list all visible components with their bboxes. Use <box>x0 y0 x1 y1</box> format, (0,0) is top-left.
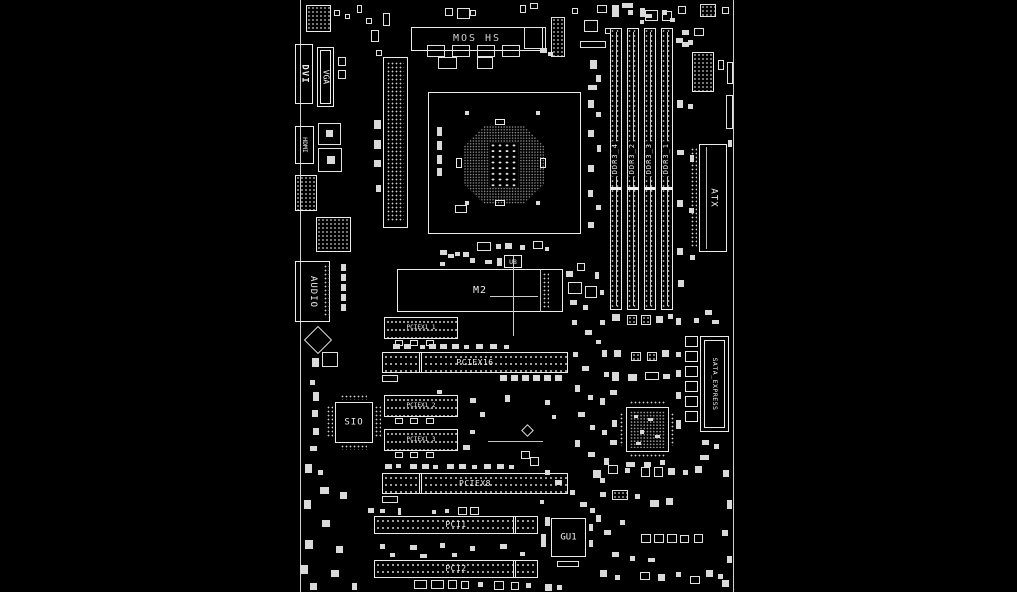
component <box>521 451 530 459</box>
component <box>727 500 732 509</box>
component <box>345 14 350 19</box>
component <box>615 575 620 580</box>
component <box>604 372 609 377</box>
component <box>600 320 605 325</box>
component <box>496 244 501 249</box>
component <box>410 464 417 469</box>
component <box>485 260 492 264</box>
component <box>620 413 624 446</box>
dimm-slot-3[interactable]: DDR3_3 <box>644 28 656 310</box>
component <box>572 320 577 325</box>
component <box>437 390 442 394</box>
component <box>634 415 638 418</box>
component <box>590 508 595 513</box>
component <box>322 352 338 367</box>
component <box>680 535 689 543</box>
component <box>582 366 589 371</box>
component <box>452 553 457 557</box>
component <box>640 430 644 434</box>
component <box>610 440 617 445</box>
component <box>588 395 593 400</box>
component <box>543 273 549 309</box>
lan-port[interactable] <box>316 217 351 252</box>
gu1-chip[interactable]: GU1 <box>551 518 586 557</box>
component <box>655 435 660 438</box>
component <box>410 545 417 550</box>
sio-chip-label: SIO <box>336 418 372 427</box>
component <box>526 583 531 588</box>
component <box>385 464 392 469</box>
component <box>596 112 601 117</box>
component <box>437 127 442 136</box>
component <box>712 320 719 324</box>
pci-slot-2[interactable]: PCI2 <box>374 560 538 578</box>
component <box>555 375 562 381</box>
component <box>706 570 713 577</box>
component <box>588 165 594 172</box>
component <box>656 316 663 323</box>
component <box>502 45 520 57</box>
pci-slot-1[interactable]: PCI1 <box>374 516 538 534</box>
component <box>627 315 637 325</box>
component <box>376 50 382 56</box>
sata-ports[interactable] <box>685 336 698 422</box>
component <box>312 358 319 367</box>
component <box>584 20 598 32</box>
pciex16-slot[interactable]: PCIEX16 <box>382 352 568 373</box>
hdmi-port[interactable]: HDMI <box>295 126 314 164</box>
pciex8-slot[interactable]: PCIEX8 <box>382 473 568 494</box>
dimm-slot-label: DDR3_4 <box>612 141 619 176</box>
component <box>600 290 604 295</box>
component <box>612 12 619 17</box>
component <box>605 28 611 34</box>
component <box>694 534 703 543</box>
component <box>410 340 418 346</box>
component <box>387 62 404 222</box>
component <box>470 430 475 434</box>
socket-notch-right <box>540 158 546 168</box>
component <box>593 470 601 478</box>
component <box>472 465 477 469</box>
component <box>596 515 601 522</box>
component <box>714 444 719 449</box>
component <box>327 406 333 438</box>
component <box>376 185 381 192</box>
cpu-cap-array <box>489 142 519 188</box>
component <box>331 570 339 577</box>
pciex1-slot-3[interactable]: PCIEX1_3 <box>384 429 458 451</box>
component <box>380 544 385 549</box>
component <box>522 375 529 381</box>
sata-port[interactable] <box>685 366 698 377</box>
component <box>585 330 592 335</box>
component <box>476 344 483 349</box>
component <box>570 300 577 305</box>
pch-chip[interactable] <box>626 407 669 452</box>
component <box>429 344 436 349</box>
component <box>540 48 547 53</box>
component <box>678 280 684 287</box>
component <box>327 156 335 164</box>
component <box>596 75 601 82</box>
component <box>630 556 635 561</box>
component <box>300 565 308 574</box>
component <box>588 85 597 90</box>
component <box>305 464 312 473</box>
component <box>420 345 425 349</box>
component <box>691 148 697 248</box>
component <box>448 254 454 258</box>
pciex1-slot-2-label: PCIEX1_2 <box>385 403 457 409</box>
boardview-canvas[interactable]: DVI VGA HDMI AUDIO MOS HS DDR3_4 DDR3_2 <box>0 0 1017 592</box>
component <box>641 315 651 325</box>
component <box>524 27 546 49</box>
component <box>612 552 619 557</box>
component <box>520 552 525 556</box>
pci-slot-1-label: PCI1 <box>375 521 537 529</box>
component <box>477 57 493 69</box>
m2-slot-label: M2 <box>398 286 562 296</box>
component <box>480 412 485 417</box>
component <box>382 496 398 503</box>
component <box>334 10 340 16</box>
sata-express-connector[interactable]: SATA_EXPRESS <box>700 336 729 432</box>
component <box>533 241 543 249</box>
component <box>668 314 673 319</box>
component <box>727 556 732 563</box>
component <box>676 370 681 377</box>
component <box>461 581 469 589</box>
component <box>338 57 346 66</box>
component <box>573 352 578 357</box>
component <box>445 8 453 16</box>
socket-notch-top <box>495 119 505 125</box>
component <box>671 413 675 446</box>
component <box>570 490 575 495</box>
component <box>612 314 620 321</box>
sata-port[interactable] <box>685 351 698 362</box>
cpu-socket[interactable] <box>428 92 581 234</box>
pciex1-slot-1[interactable]: PCIEX1_1 <box>384 317 458 339</box>
component <box>313 428 319 435</box>
component <box>676 392 681 399</box>
component <box>310 380 315 385</box>
component <box>440 262 445 266</box>
component <box>447 464 454 469</box>
component <box>551 17 565 57</box>
component <box>580 502 587 507</box>
component <box>463 445 470 450</box>
component <box>666 498 673 505</box>
component <box>596 340 601 344</box>
component <box>662 10 667 15</box>
component <box>341 445 367 450</box>
component <box>452 344 459 349</box>
component <box>658 574 665 581</box>
component <box>676 318 681 325</box>
component <box>320 487 329 494</box>
component <box>694 28 704 36</box>
component <box>520 5 526 13</box>
component <box>310 446 317 451</box>
component <box>352 583 357 590</box>
dimm-slot-label: DDR3_1 <box>663 141 670 176</box>
component <box>590 425 595 430</box>
component <box>608 465 618 474</box>
component <box>545 247 549 251</box>
component <box>396 464 401 468</box>
gu1-chip-label: GU1 <box>552 533 585 542</box>
dvi-port[interactable]: DVI <box>295 44 313 104</box>
component <box>722 530 728 536</box>
component <box>494 581 504 590</box>
m2-slot[interactable]: M2 <box>397 269 563 312</box>
component <box>682 30 689 35</box>
component <box>702 440 709 445</box>
component <box>445 509 449 513</box>
component <box>459 464 466 469</box>
component <box>597 145 601 152</box>
component <box>644 462 651 467</box>
component <box>374 120 381 129</box>
dimm-key-notch <box>645 187 655 190</box>
socket-notch-bottom <box>495 200 505 206</box>
crosshair-horizontal <box>490 296 538 297</box>
component <box>465 111 469 115</box>
pciex1-slot-2[interactable]: PCIEX1_2 <box>384 395 458 417</box>
component <box>470 10 476 16</box>
component <box>341 294 346 301</box>
component <box>398 508 401 515</box>
component <box>338 70 346 79</box>
component <box>357 5 362 13</box>
vga-port[interactable]: VGA <box>317 47 334 107</box>
component <box>588 190 593 197</box>
audio-jacks-label: AUDIO <box>308 275 317 307</box>
component <box>640 572 650 580</box>
component <box>465 201 469 205</box>
vga-port-label: VGA <box>322 70 330 84</box>
component <box>375 406 381 438</box>
component <box>484 464 491 469</box>
sata-port[interactable] <box>685 396 698 407</box>
component <box>612 372 619 381</box>
component <box>452 45 470 57</box>
pciex16-slot-label: PCIEX16 <box>383 358 567 366</box>
dimm-slot-label: DDR3_2 <box>629 141 636 176</box>
component <box>596 205 601 210</box>
component <box>313 392 319 401</box>
component <box>604 530 611 535</box>
component <box>648 558 655 562</box>
component <box>437 141 442 150</box>
component <box>324 265 330 317</box>
component <box>590 60 597 69</box>
component <box>440 250 447 255</box>
component <box>341 274 346 281</box>
component <box>477 242 491 251</box>
component <box>614 350 621 357</box>
component <box>341 264 346 271</box>
component <box>545 470 550 475</box>
component <box>577 263 585 271</box>
sata-port[interactable] <box>685 336 698 347</box>
component <box>589 540 593 547</box>
component <box>304 500 311 509</box>
component <box>654 467 663 477</box>
component <box>437 168 442 176</box>
component <box>478 582 483 587</box>
dvi-port-label: DVI <box>300 64 309 83</box>
component <box>620 520 625 525</box>
component <box>600 570 607 577</box>
component <box>490 344 497 349</box>
component <box>426 452 434 458</box>
component <box>575 385 580 392</box>
mosfet-heatsink-label: MOS HS <box>412 34 542 44</box>
dimm-key-notch <box>662 187 672 190</box>
component <box>368 508 374 513</box>
component <box>678 6 686 14</box>
component <box>722 7 729 14</box>
cpu-power-connector[interactable] <box>692 52 714 92</box>
component <box>645 372 659 380</box>
component <box>728 140 732 147</box>
component <box>588 222 594 228</box>
component <box>458 507 467 515</box>
component <box>588 100 594 108</box>
component <box>600 478 605 483</box>
component <box>341 395 367 400</box>
component <box>545 400 550 405</box>
component <box>650 500 659 507</box>
sata-express-label: SATA_EXPRESS <box>711 357 718 412</box>
component <box>557 561 579 567</box>
component <box>677 200 683 207</box>
component <box>602 350 607 357</box>
component <box>676 352 681 357</box>
component <box>727 62 733 84</box>
component <box>600 398 605 405</box>
component <box>500 375 507 381</box>
component <box>568 282 582 294</box>
component <box>393 344 400 349</box>
component <box>318 470 323 475</box>
component <box>504 345 509 349</box>
component <box>640 8 645 17</box>
component <box>690 576 700 584</box>
component <box>304 326 332 354</box>
component <box>718 574 723 579</box>
component <box>575 440 580 447</box>
sio-chip[interactable]: SIO <box>335 402 373 443</box>
component <box>630 401 665 405</box>
component <box>552 415 556 419</box>
component <box>540 270 541 312</box>
component <box>410 418 418 424</box>
component <box>427 45 445 57</box>
usb-ports[interactable] <box>295 175 317 211</box>
component <box>602 430 607 435</box>
component <box>628 374 637 381</box>
component <box>604 458 609 465</box>
dimm-slot-1[interactable]: DDR3_4 <box>610 28 622 310</box>
component <box>440 344 447 349</box>
component <box>500 544 507 549</box>
component <box>521 424 534 437</box>
component <box>610 390 617 395</box>
keyboard-connector[interactable] <box>306 5 331 32</box>
component <box>682 42 689 47</box>
pciex1-slot-3-label: PCIEX1_3 <box>385 437 457 443</box>
component <box>654 534 664 543</box>
sata-port[interactable] <box>685 381 698 392</box>
component <box>677 100 683 108</box>
component <box>647 352 657 361</box>
component <box>580 41 606 48</box>
component <box>505 395 510 402</box>
dimm-slot-4[interactable]: DDR3_1 <box>661 28 673 310</box>
component <box>463 252 469 257</box>
component <box>477 45 495 57</box>
dimm-slot-2[interactable]: DDR3_2 <box>627 28 639 310</box>
component <box>455 252 460 256</box>
component <box>630 454 665 458</box>
component <box>718 60 724 70</box>
component <box>544 375 551 381</box>
component <box>662 350 669 357</box>
component <box>341 284 346 291</box>
component <box>440 543 445 548</box>
pciex8-slot-label: PCIEX8 <box>383 479 567 487</box>
component <box>700 455 709 460</box>
component <box>572 8 578 14</box>
component <box>541 534 546 547</box>
component <box>631 352 641 361</box>
component <box>536 111 540 115</box>
component <box>457 8 470 19</box>
component <box>566 271 573 277</box>
atx-power-label: ATX <box>709 188 718 207</box>
board-edge-right <box>733 0 734 592</box>
component <box>422 464 429 469</box>
component <box>305 540 313 549</box>
atx-power-connector[interactable]: ATX <box>699 144 727 252</box>
component <box>588 130 594 137</box>
component <box>700 4 716 17</box>
component <box>530 3 538 9</box>
component <box>488 441 543 442</box>
component <box>497 258 502 266</box>
component <box>511 375 518 381</box>
component <box>597 5 607 13</box>
component <box>383 13 390 26</box>
component <box>382 375 398 382</box>
component <box>695 466 702 473</box>
atx-inner-line <box>706 147 707 249</box>
component <box>533 375 540 381</box>
component <box>645 14 652 18</box>
component <box>530 457 539 466</box>
component <box>437 155 442 164</box>
component <box>595 272 599 279</box>
sata-port[interactable] <box>685 411 698 422</box>
component <box>438 57 457 69</box>
component <box>648 418 653 421</box>
pciex1-slot-1-label: PCIEX1_1 <box>385 325 457 331</box>
component <box>557 585 562 590</box>
